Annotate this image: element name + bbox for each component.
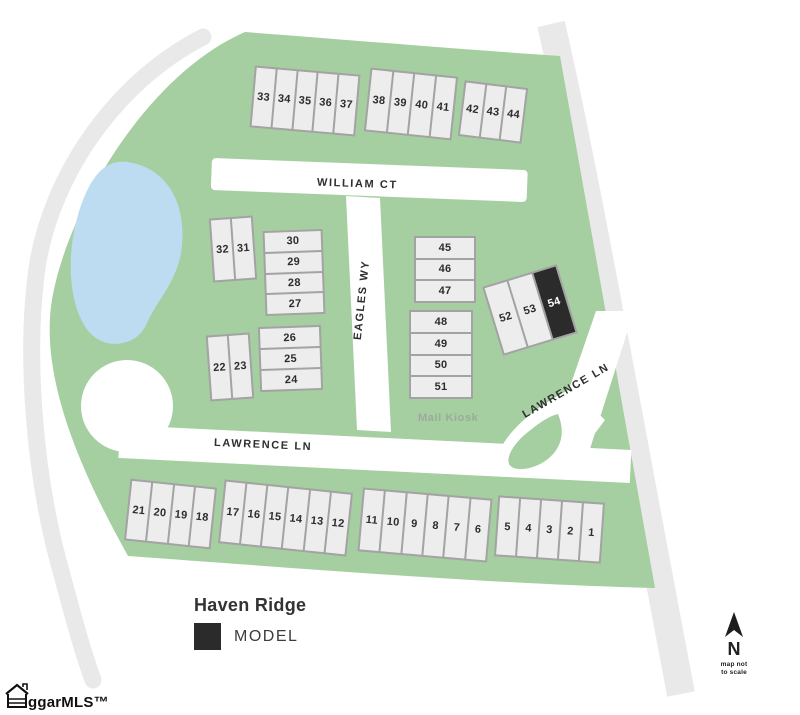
- lot-18: 18: [190, 487, 215, 547]
- lot-group-stack-26-24: 262524: [258, 325, 323, 392]
- lot-45: 45: [416, 238, 474, 258]
- lot-group-stack-48-51: 48495051: [409, 310, 473, 399]
- lot-51: 51: [411, 377, 471, 397]
- lot-27: 27: [267, 293, 324, 314]
- lot-29: 29: [265, 252, 322, 273]
- lot-31: 31: [232, 218, 255, 279]
- lot-group-stack-45-47: 454647: [414, 236, 476, 303]
- lot-41: 41: [430, 77, 456, 139]
- lot-37: 37: [335, 75, 359, 134]
- lot-group-row-33-37: 3334353637: [249, 65, 360, 136]
- lot-7: 7: [445, 497, 469, 558]
- lot-2: 2: [559, 502, 582, 560]
- lot-group-row-38-41: 38394041: [364, 68, 458, 141]
- lot-group-row-17-12: 171615141312: [218, 479, 353, 556]
- mail-kiosk-label: Mail Kiosk: [418, 412, 478, 424]
- lot-48: 48: [411, 312, 471, 332]
- lot-36: 36: [314, 73, 338, 132]
- lot-22: 22: [208, 336, 231, 399]
- site-map: 3334353637383940414243443231302928272625…: [0, 0, 800, 715]
- lot-24: 24: [261, 369, 321, 390]
- lot-9: 9: [402, 493, 426, 554]
- lot-30: 30: [265, 231, 322, 252]
- lot-34: 34: [272, 69, 296, 128]
- lot-50: 50: [411, 356, 471, 376]
- lot-44: 44: [501, 88, 526, 142]
- lot-1: 1: [580, 503, 603, 561]
- model-label: MODEL: [234, 628, 298, 646]
- lot-35: 35: [293, 71, 317, 130]
- lot-group-pair-32-31: 3231: [209, 216, 257, 283]
- lot-28: 28: [266, 273, 323, 294]
- lot-5: 5: [496, 497, 519, 555]
- page-title: Haven Ridge: [194, 595, 306, 616]
- lot-group-row-21-18: 21201918: [124, 479, 217, 550]
- lot-25: 25: [261, 348, 321, 369]
- lot-3: 3: [538, 500, 561, 558]
- lot-11: 11: [360, 490, 384, 551]
- lot-group-pair-22-23: 2223: [206, 333, 254, 402]
- lot-46: 46: [416, 260, 474, 280]
- mls-logo: ggarMLS™: [2, 681, 109, 711]
- mls-logo-text: ggarMLS™: [28, 694, 109, 711]
- lot-group-row-11-6: 11109876: [357, 487, 492, 562]
- lot-group-stack-30-27: 30292827: [263, 229, 326, 316]
- lot-26: 26: [260, 327, 320, 348]
- lot-12: 12: [325, 493, 350, 555]
- lot-23: 23: [229, 335, 252, 398]
- lot-10: 10: [381, 491, 405, 552]
- lot-group-row-5-1: 54321: [494, 495, 605, 563]
- lot-4: 4: [517, 499, 540, 557]
- compass-note: map not to scale: [710, 661, 758, 677]
- compass-n: N: [710, 640, 758, 658]
- north-arrow-icon: [722, 612, 746, 638]
- lot-47: 47: [416, 281, 474, 301]
- lot-group-row-42-44: 424344: [458, 80, 528, 143]
- model-legend: MODEL: [194, 623, 298, 650]
- lot-8: 8: [423, 495, 447, 556]
- lot-33: 33: [252, 68, 276, 127]
- lot-6: 6: [466, 499, 490, 560]
- model-swatch: [194, 623, 221, 650]
- lot-32: 32: [211, 219, 234, 280]
- compass: N map not to scale: [710, 612, 758, 677]
- lot-49: 49: [411, 334, 471, 354]
